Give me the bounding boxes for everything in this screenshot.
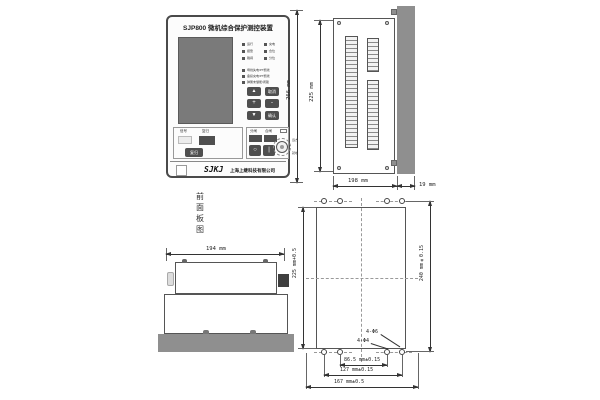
- dim-label-167: 167 mm±0.5: [334, 380, 364, 385]
- dim-label-198: 198 mm: [348, 179, 368, 185]
- mounting-hole: [337, 198, 343, 204]
- ext-line: [418, 353, 419, 389]
- signal-label: 信号: [180, 130, 187, 134]
- led-label: 母线失电/PT断线: [247, 69, 270, 72]
- screw: [385, 166, 389, 170]
- hole-centerline: [314, 201, 352, 202]
- ext-line: [290, 10, 303, 11]
- open-indicator: [249, 135, 262, 142]
- dim-line-167: [306, 387, 418, 388]
- dim-line-cutout-height: [303, 207, 304, 349]
- reset-button: 复归: [185, 148, 203, 157]
- reset-indicator: [199, 136, 215, 145]
- led-dot: [242, 81, 245, 84]
- key-minus: -: [265, 99, 279, 108]
- key-up: ▲: [247, 87, 261, 96]
- led-dot: [242, 50, 245, 53]
- rotary-knob-dot: [280, 145, 284, 149]
- rotary-icon: [280, 129, 287, 133]
- key-cancel: 取消: [265, 87, 279, 96]
- dim-line-127: [324, 375, 402, 376]
- callout-phi6: 4-Φ6: [366, 330, 378, 335]
- panel-tab: [391, 160, 397, 166]
- close-label: 合闸: [265, 130, 272, 134]
- led-label: 报警: [247, 50, 253, 53]
- open-button: ○: [249, 145, 261, 156]
- led-dot: [264, 43, 267, 46]
- key-down: ▼: [247, 111, 261, 120]
- led-dot: [264, 50, 267, 53]
- ext-line: [290, 182, 303, 183]
- switch-group-box: 分闸 合闸 ○ | 远方 就地: [246, 127, 289, 159]
- dim-line-86: [340, 365, 387, 366]
- hole-centerline: [376, 352, 412, 353]
- ext-line: [406, 201, 434, 202]
- key-confirm: 确认: [265, 111, 279, 120]
- open-label: 分闸: [250, 130, 257, 134]
- dim-line-198: [333, 186, 397, 187]
- screw: [337, 166, 341, 170]
- device-case: SJP800 微机综合保护测控装置 运行 充电 报警 合位 跳闸 分位 母线失电…: [166, 15, 290, 178]
- led-label: 弹簧未储能/闭锁: [247, 81, 269, 84]
- ext-line: [314, 20, 334, 21]
- led-dot: [242, 69, 245, 72]
- hole-centerline: [314, 352, 352, 353]
- dim-line-225: [320, 20, 321, 172]
- top-case-body: [175, 262, 277, 294]
- led-dot: [264, 57, 267, 60]
- ext-line: [406, 351, 434, 352]
- logo-box: [176, 165, 187, 176]
- led-label: 充电: [269, 43, 275, 46]
- led-label: 合位: [269, 50, 275, 53]
- brand-company: 上海上继科技有限公司: [230, 168, 275, 174]
- panel-cross-section: [158, 334, 294, 352]
- ext-line: [298, 207, 316, 208]
- key-plus: +: [247, 99, 261, 108]
- dim-label-19: 19 mm: [419, 183, 436, 189]
- mounting-hole: [399, 198, 405, 204]
- mounting-panel-bar: [397, 6, 415, 174]
- centerline-horizontal: [306, 278, 418, 279]
- led-label: 运行: [247, 43, 253, 46]
- dim-line-266: [297, 10, 298, 183]
- front-view-caption: 前面板图: [196, 191, 204, 235]
- case-bump: [263, 259, 268, 263]
- mounting-hole: [321, 198, 327, 204]
- dim-label-hole-height: 240 mm±0.15: [420, 245, 425, 281]
- screw: [337, 21, 341, 25]
- brand-logo: SJKJ: [204, 166, 223, 174]
- dim-line-19: [397, 186, 415, 187]
- terminal-block-right-upper: [367, 38, 379, 72]
- case-bump: [182, 259, 187, 263]
- drawing-canvas: SJP800 微机综合保护测控装置 运行 充电 报警 合位 跳闸 分位 母线失电…: [0, 0, 600, 400]
- led-label: 跳闸: [247, 57, 253, 60]
- ext-line: [298, 348, 316, 349]
- dim-label-225: 225 mm: [310, 82, 316, 102]
- lcd-screen: [178, 37, 233, 124]
- reset-label: 复归: [202, 130, 209, 134]
- led-dot: [242, 43, 245, 46]
- ext-line: [314, 171, 334, 172]
- device-title: SJP800 微机综合保护测控装置: [168, 22, 288, 32]
- dim-label-266: 266 mm: [287, 80, 293, 100]
- dim-label-194: 194 mm: [206, 247, 226, 253]
- led-label: 分位: [269, 57, 275, 60]
- panel-tab: [391, 9, 397, 15]
- led-label: 备投充电/PT断线: [247, 75, 270, 78]
- dim-label-86: 86.5 mm±0.15: [344, 358, 380, 363]
- signal-group-box: 信号 复归 复归: [173, 127, 243, 159]
- callout-phi4: 4-Φ4: [357, 339, 369, 344]
- screw: [385, 21, 389, 25]
- terminal-block-right-lower: [367, 80, 379, 150]
- ext-line: [306, 353, 307, 389]
- brand-strip: [170, 161, 286, 162]
- dim-label-127: 127 mm±0.15: [340, 368, 373, 373]
- connector-block: [278, 274, 289, 287]
- signal-indicator: [178, 136, 192, 144]
- side-case: [333, 18, 395, 174]
- side-latch: [167, 272, 174, 286]
- mounting-hole: [384, 198, 390, 204]
- dim-label-cutout-height: 225 mm+0.5: [293, 248, 298, 278]
- front-bezel: [164, 294, 288, 334]
- dim-line-194: [166, 254, 284, 255]
- terminal-block-left: [345, 36, 358, 148]
- dim-line-hole-height: [430, 201, 431, 352]
- led-dot: [242, 57, 245, 60]
- led-dot: [242, 75, 245, 78]
